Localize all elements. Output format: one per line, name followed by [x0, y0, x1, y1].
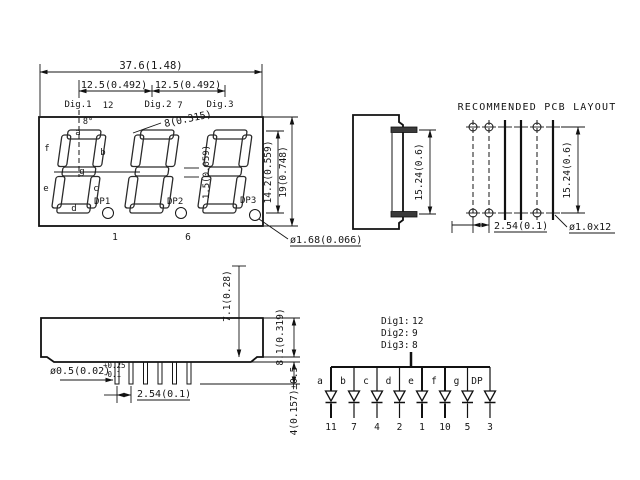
led-branch-e: e 1: [408, 367, 427, 433]
dp2-circle: [176, 208, 187, 219]
dim-pitch-right: 12.5(0.492): [155, 80, 221, 91]
segment-f-label: f: [44, 144, 49, 154]
segment-pin: 7: [351, 422, 357, 433]
led-branch-g: g 5: [454, 367, 473, 433]
segment-g-label: g: [79, 167, 84, 177]
pin: [173, 362, 177, 384]
segment-pin: 11: [325, 422, 337, 433]
pin: [129, 362, 133, 384]
dp2-label: DP2: [167, 197, 183, 207]
pin-schematic: Dig1: 12 Dig2: 9 Dig3: 8 a 11 b 7: [317, 316, 495, 433]
led-branch-f: f 10: [431, 367, 451, 433]
segment-label: f: [431, 376, 437, 387]
dim-bottom-pin-pitch: 2.54(0.1): [137, 389, 191, 400]
schematic-dig3-pin: 8: [412, 340, 418, 351]
schematic-dig1-label: Dig1:: [381, 316, 410, 327]
pin: [158, 362, 162, 384]
digit2-pin-label: 7: [177, 101, 182, 111]
dp1-circle: [103, 208, 114, 219]
led-branch-a: a 11: [317, 367, 337, 433]
dim-side-row-spacing: 15.24(0.6): [414, 143, 425, 200]
digit1-pin-label: 12: [103, 101, 114, 111]
led-branch-dp: DP 3: [471, 367, 495, 433]
segment-label: e: [408, 376, 414, 387]
segment-label: g: [454, 376, 460, 387]
pcb-layout-title: RECOMMENDED PCB LAYOUT: [458, 102, 617, 113]
slant-angle-label: 8°: [83, 117, 93, 127]
segment-label: DP: [471, 376, 483, 387]
segment-e-label: e: [43, 184, 48, 194]
segment-d-label: d: [71, 204, 76, 214]
dim-pin-diameter: ø0.5(0.02): [50, 366, 110, 377]
dim-standoff: 7.1(0.28): [222, 270, 233, 321]
dim-pin-length: 4(0.157)±0.5: [289, 367, 300, 436]
schematic-dig3-label: Dig3:: [381, 340, 410, 351]
dim-body-height: 19(0.748): [278, 146, 289, 197]
pin: [144, 362, 148, 384]
segment-label: a: [317, 376, 323, 387]
dim-dp-diameter: ø1.68(0.066): [290, 235, 362, 246]
dim-pitch-left: 12.5(0.492): [81, 80, 147, 91]
segment-pin: 3: [487, 422, 493, 433]
dim-seg-gap: 1.5(0.059): [202, 145, 212, 199]
digit2-label: Dig.2: [144, 100, 171, 110]
pcb-layout: RECOMMENDED PCB LAYOUT 2.54(0.1): [452, 102, 616, 233]
digit3-label: Dig.3: [206, 100, 233, 110]
schematic-dig2-label: Dig2:: [381, 328, 410, 339]
front-view: 37.6(1.48) 12.5(0.492) 12.5(0.492) Dig.1…: [39, 60, 362, 246]
bottom-outline: [41, 318, 263, 362]
dp3-label: DP3: [240, 196, 256, 206]
segment-c-label: c: [93, 184, 98, 194]
schematic-dig2-pin: 9: [412, 328, 418, 339]
segment-pin: 2: [397, 422, 403, 433]
dim-char-height: 14.2(0.559): [263, 141, 274, 204]
dp1-label: DP1: [94, 197, 110, 207]
segment-pin: 5: [465, 422, 471, 433]
digit1-label: Dig.1: [64, 100, 91, 110]
dim-body-thickness: 8.1(0.319): [275, 308, 286, 365]
pin1-marker: 1: [112, 232, 118, 243]
segment-b-label: b: [100, 148, 105, 158]
dim-pcb-pitch: 2.54(0.1): [494, 221, 548, 232]
pin6-marker: 6: [185, 232, 191, 243]
side-pin-bottom: [391, 212, 417, 218]
segment-pin: 10: [439, 422, 451, 433]
segment-pin: 1: [419, 422, 425, 433]
side-view: 15.24(0.6): [353, 115, 436, 229]
side-pin-top: [391, 127, 417, 133]
pin: [187, 362, 191, 384]
dp3-circle: [250, 210, 261, 221]
dim-pcb-row-spacing: 15.24(0.6): [562, 141, 573, 198]
led-branch-c: c 4: [363, 367, 382, 433]
segment-label: c: [363, 376, 369, 387]
segment-label: d: [386, 376, 392, 387]
pcb-hole-spec: ø1.0x12: [569, 222, 611, 233]
dim-char-width: 8(0.315): [163, 109, 212, 130]
dim-overall-width: 37.6(1.48): [119, 60, 182, 72]
segment-label: b: [340, 376, 346, 387]
led-branch-b: b 7: [340, 367, 359, 433]
led-branch-d: d 2: [386, 367, 405, 433]
pin-dia-tol-minus: -0.1: [103, 370, 121, 379]
mechanical-drawing: 37.6(1.48) 12.5(0.492) 12.5(0.492) Dig.1…: [0, 0, 640, 480]
pin-dia-tol-plus: +0.25: [103, 361, 126, 370]
bottom-view: 7.1(0.28) 8.1(0.319) 4(0.157)±0.5 ø0.5(0…: [41, 266, 300, 435]
segment-a-label: a: [75, 128, 80, 138]
schematic-dig1-pin: 12: [412, 316, 423, 327]
segment-pin: 4: [374, 422, 380, 433]
